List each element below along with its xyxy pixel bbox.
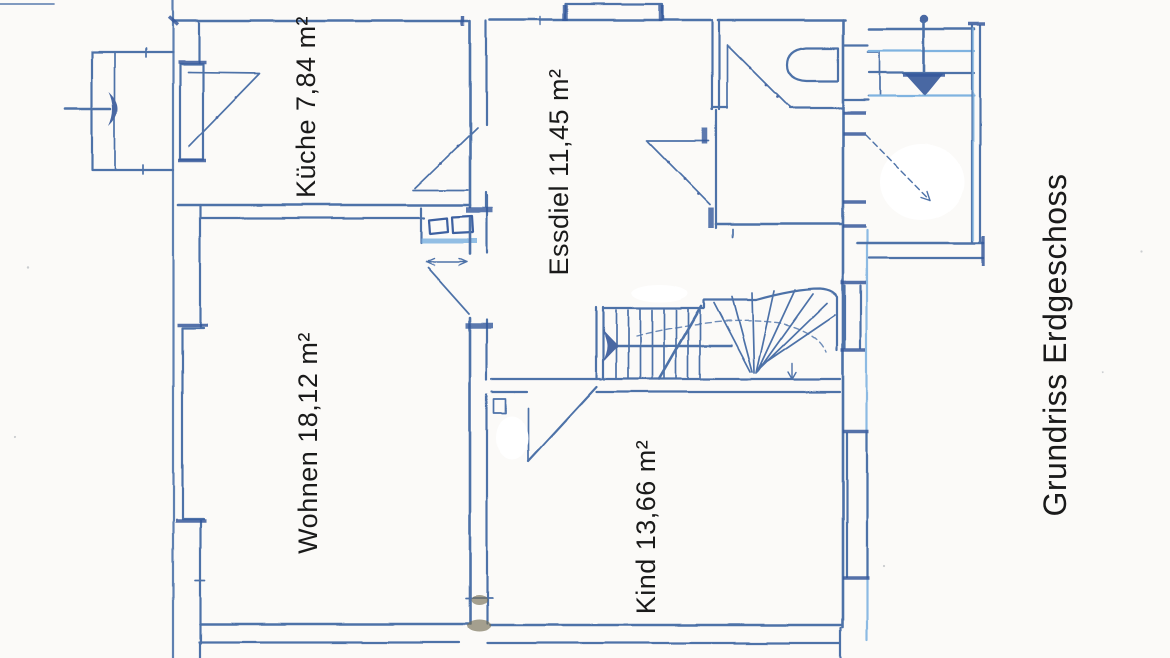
kueche-room-label: Küche 7,84 m² [291, 16, 321, 198]
kind-room-label: Kind 13,66 m² [631, 440, 661, 615]
whiteout-blob [880, 144, 964, 220]
paper-background [0, 0, 1170, 658]
floor-plan: Küche 7,84 m² Essdiel 11,45 m² Wohnen 18… [0, 0, 1170, 658]
plan-title: Grundriss Erdgeschoss [1037, 173, 1073, 516]
whiteout-blob [632, 284, 688, 302]
wohnen-room-label: Wohnen 18,12 m² [293, 332, 323, 554]
essdiel-room-label: Essdiel 11,45 m² [544, 68, 574, 275]
floorplan-canvas: Küche 7,84 m² Essdiel 11,45 m² Wohnen 18… [0, 0, 1170, 658]
